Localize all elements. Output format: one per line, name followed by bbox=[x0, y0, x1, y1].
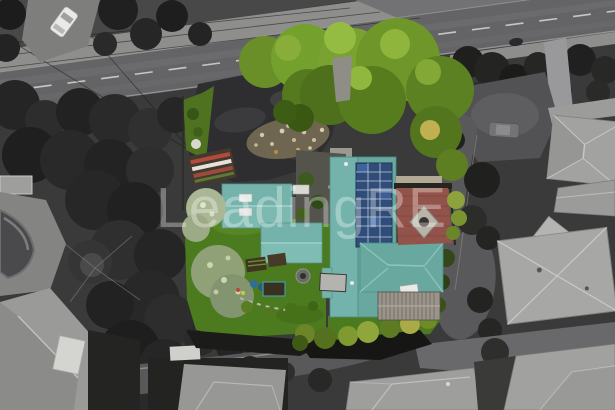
hip-roof-extension bbox=[360, 243, 443, 295]
solar-panel-array bbox=[356, 163, 392, 247]
framed-bed bbox=[263, 282, 285, 296]
pergola-roof bbox=[378, 292, 440, 320]
roof-vent2 bbox=[350, 281, 354, 285]
garden-shed bbox=[320, 273, 347, 291]
chimney bbox=[446, 382, 450, 386]
diamond-centre bbox=[419, 217, 429, 227]
white-wall bbox=[170, 345, 201, 361]
roof-vent bbox=[344, 162, 348, 166]
white-shrub bbox=[191, 139, 201, 149]
main-roof-west-plane bbox=[330, 157, 358, 317]
gray-car bbox=[489, 122, 520, 138]
skylight-2 bbox=[239, 208, 252, 216]
blue-barrel bbox=[250, 280, 258, 288]
extension-ridge bbox=[388, 265, 425, 266]
skylight-1 bbox=[239, 194, 252, 202]
dark-deck bbox=[88, 330, 140, 410]
neighbor-house-topright bbox=[547, 115, 615, 186]
link-skylight bbox=[293, 185, 309, 194]
small-shed-left bbox=[0, 176, 32, 194]
aerial-photo-canvas bbox=[0, 0, 615, 410]
aerial-photo: LeadingRE bbox=[0, 0, 615, 410]
